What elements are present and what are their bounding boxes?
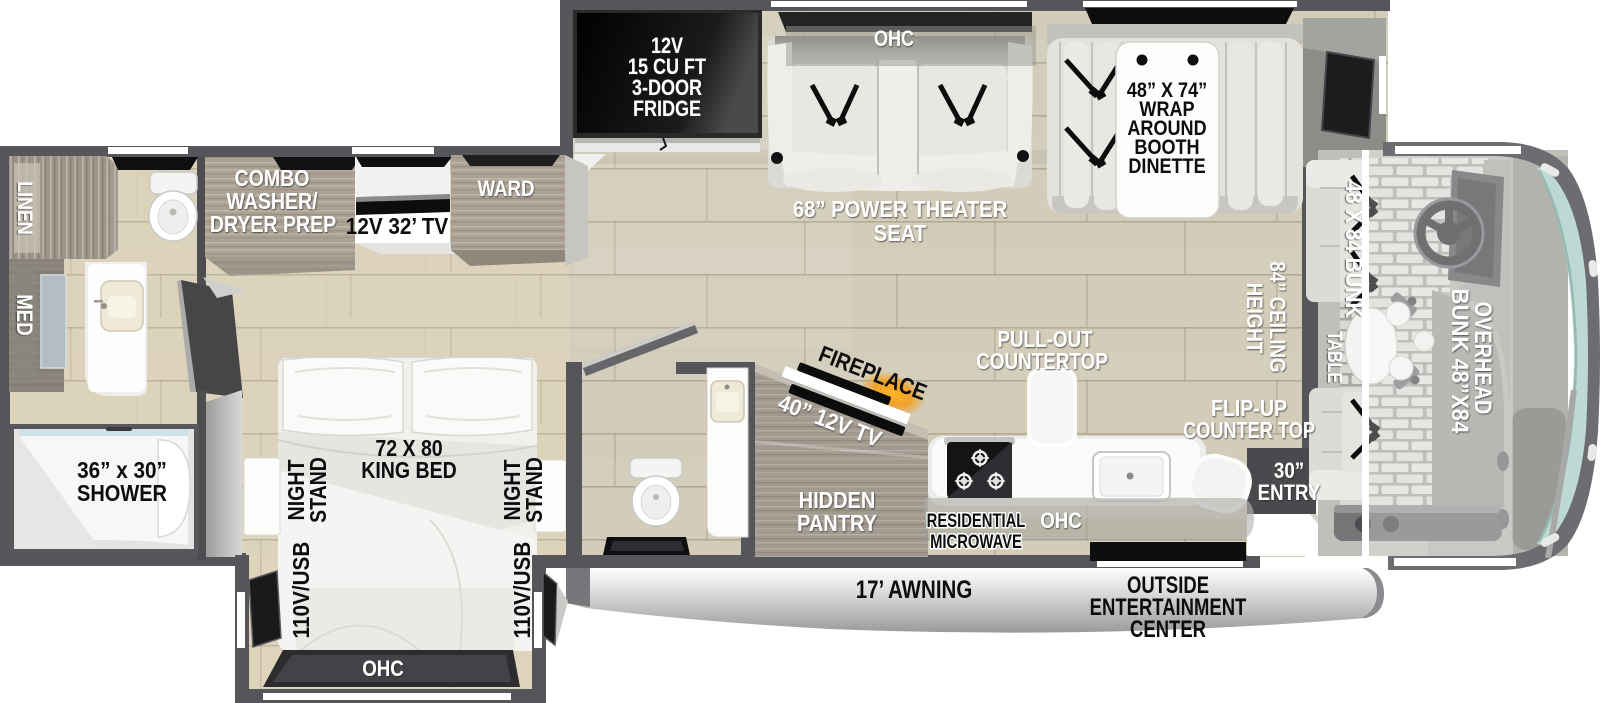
- svg-text:DINETTE: DINETTE: [1128, 155, 1205, 179]
- svg-text:SEAT: SEAT: [874, 220, 926, 247]
- svg-text:HEIGHT: HEIGHT: [1242, 283, 1266, 354]
- svg-text:LINEN: LINEN: [13, 181, 37, 234]
- svg-text:ENTRY: ENTRY: [1258, 482, 1321, 506]
- svg-text:48 X 84 BUNK: 48 X 84 BUNK: [1341, 181, 1367, 318]
- svg-text:RESIDENTIAL: RESIDENTIAL: [927, 510, 1026, 531]
- svg-text:BUNK 48”X84: BUNK 48”X84: [1447, 289, 1474, 434]
- svg-text:DRYER PREP: DRYER PREP: [210, 212, 336, 238]
- svg-text:CENTER: CENTER: [1130, 616, 1206, 643]
- svg-text:STAND: STAND: [522, 457, 548, 523]
- svg-text:COUNTERTOP: COUNTERTOP: [976, 349, 1108, 374]
- svg-text:STAND: STAND: [306, 457, 332, 523]
- svg-text:PANTRY: PANTRY: [797, 510, 878, 537]
- svg-text:17’ AWNING: 17’ AWNING: [856, 575, 973, 603]
- svg-text:KING BED: KING BED: [361, 458, 457, 484]
- svg-text:30”: 30”: [1274, 460, 1304, 484]
- svg-text:OHC: OHC: [362, 658, 404, 682]
- svg-text:FRIDGE: FRIDGE: [633, 97, 701, 121]
- svg-text:12V 32’ TV: 12V 32’ TV: [346, 213, 449, 239]
- svg-text:WASHER/: WASHER/: [226, 189, 317, 215]
- svg-text:OHC: OHC: [874, 27, 914, 51]
- svg-text:MED: MED: [12, 294, 36, 336]
- svg-text:COMBO: COMBO: [235, 166, 310, 192]
- svg-text:COUNTER TOP: COUNTER TOP: [1183, 418, 1315, 444]
- svg-text:110V/USB: 110V/USB: [509, 542, 535, 639]
- svg-text:OHC: OHC: [1040, 510, 1082, 534]
- svg-text:84” CEILING: 84” CEILING: [1265, 261, 1289, 372]
- svg-text:WARD: WARD: [477, 178, 534, 202]
- svg-text:110V/USB: 110V/USB: [288, 542, 314, 639]
- svg-text:68” POWER THEATER: 68” POWER THEATER: [793, 196, 1008, 223]
- svg-text:TABLE: TABLE: [1324, 331, 1346, 383]
- svg-text:MICROWAVE: MICROWAVE: [930, 531, 1022, 552]
- svg-text:SHOWER: SHOWER: [77, 480, 167, 507]
